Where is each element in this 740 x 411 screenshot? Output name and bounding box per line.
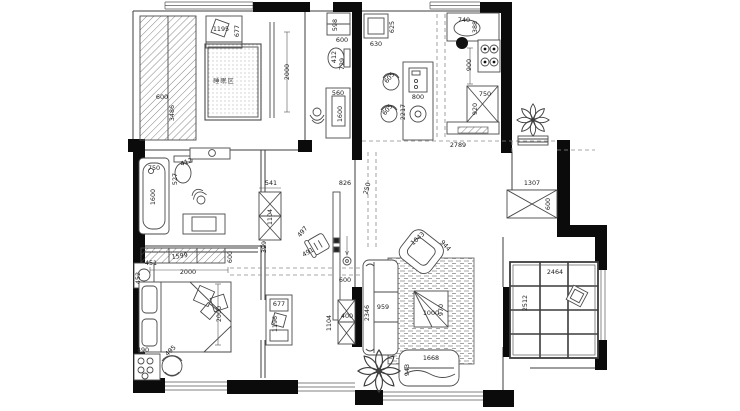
dim-label-1104: 1104 — [325, 315, 333, 331]
plant-entry — [517, 104, 549, 136]
dim-label-2512: 2512 — [521, 295, 529, 311]
plant-living — [358, 350, 400, 392]
dim-label-412: 412 — [330, 51, 338, 63]
dim-label-2000: 2000 — [215, 306, 223, 322]
dim-label-1600: 1600 — [149, 189, 157, 205]
door-mat — [518, 136, 548, 145]
dim-label-959: 959 — [377, 303, 389, 311]
dim-label-527: 527 — [171, 173, 179, 185]
dim-label-250: 250 — [362, 182, 373, 196]
dim-label-970: 970 — [437, 304, 445, 316]
dim-label-452: 452 — [134, 272, 142, 284]
window-top-kitchen — [430, 2, 480, 9]
entry — [517, 104, 549, 145]
floor-plan-canvas: 1195677600348620005986004127295601600630… — [0, 0, 740, 411]
dim-label-388: 388 — [471, 21, 479, 33]
dim-label-920: 920 — [471, 103, 479, 115]
dim-label-541: 541 — [265, 179, 277, 187]
dim-label-1600: 1600 — [336, 106, 344, 122]
dim-label-750: 750 — [148, 164, 160, 172]
kitchen-island — [403, 62, 433, 140]
dim-label-2000: 2000 — [283, 64, 291, 80]
dim-label-1195: 1195 — [213, 25, 229, 33]
dim-label-600: 600 — [156, 93, 168, 101]
living-room — [358, 226, 474, 392]
dim-label-625: 625 — [388, 21, 396, 33]
window-bottom-living — [382, 392, 483, 400]
dim-label-399: 399 — [260, 241, 268, 253]
room-label-睡眠区: 睡眠区 — [213, 77, 235, 85]
round-chair — [162, 356, 182, 376]
dim-label-605: 605 — [382, 70, 396, 84]
bedside-bench — [134, 354, 160, 380]
sliding-door — [270, 22, 274, 118]
floor-plan-drawing: 1195677600348620005986004127295601600630… — [0, 0, 740, 411]
dim-label-740: 740 — [458, 16, 470, 24]
dim-label-2464: 2464 — [547, 268, 563, 276]
dim-label-1196: 1196 — [271, 316, 279, 332]
dim-label-2000: 2000 — [180, 268, 196, 276]
dim-label-490: 490 — [137, 346, 149, 354]
vanity-left — [183, 187, 225, 234]
dim-label-677: 677 — [233, 25, 241, 37]
dim-label-1668: 1668 — [423, 354, 439, 362]
kitchen-appliance-topleft — [364, 14, 388, 38]
cooktop — [478, 40, 500, 72]
dim-label-497: 497 — [295, 224, 309, 238]
dim-label-400: 400 — [341, 312, 353, 320]
dim-label-2789: 2789 — [450, 141, 466, 149]
cabinet-x-lower — [338, 300, 355, 344]
dim-label-600: 600 — [226, 251, 234, 263]
shelf-top — [190, 148, 230, 159]
bathroom-top — [310, 13, 350, 138]
dim-label-630: 630 — [370, 40, 382, 48]
dim-label-600: 600 — [544, 198, 552, 210]
dim-label-3486: 3486 — [168, 105, 176, 121]
dim-label-677: 677 — [273, 300, 285, 308]
dim-label-750: 750 — [479, 90, 491, 98]
dim-label-2217: 2217 — [399, 104, 407, 120]
window-bottom-bedroom — [165, 382, 227, 390]
dim-label-1104: 1104 — [266, 209, 274, 225]
kitchen-counter-bottom — [447, 122, 499, 134]
dim-label-2346: 2346 — [363, 305, 371, 321]
window-bottom-hall — [298, 383, 355, 391]
dim-label-826: 826 — [339, 179, 351, 187]
dim-label-605: 605 — [380, 102, 394, 116]
dim-label-600: 600 — [339, 276, 351, 284]
dim-label-451: 451 — [145, 259, 157, 267]
dim-label-1307: 1307 — [524, 179, 540, 187]
dim-label-600: 600 — [336, 36, 348, 44]
window-top-bedroom — [165, 2, 253, 9]
dim-label-943: 943 — [403, 364, 411, 376]
dim-label-800: 800 — [412, 93, 424, 101]
dim-label-560: 560 — [332, 89, 344, 97]
dim-label-598: 598 — [331, 19, 339, 31]
dim-label-729: 729 — [338, 58, 346, 70]
dim-label-900: 900 — [465, 59, 473, 71]
